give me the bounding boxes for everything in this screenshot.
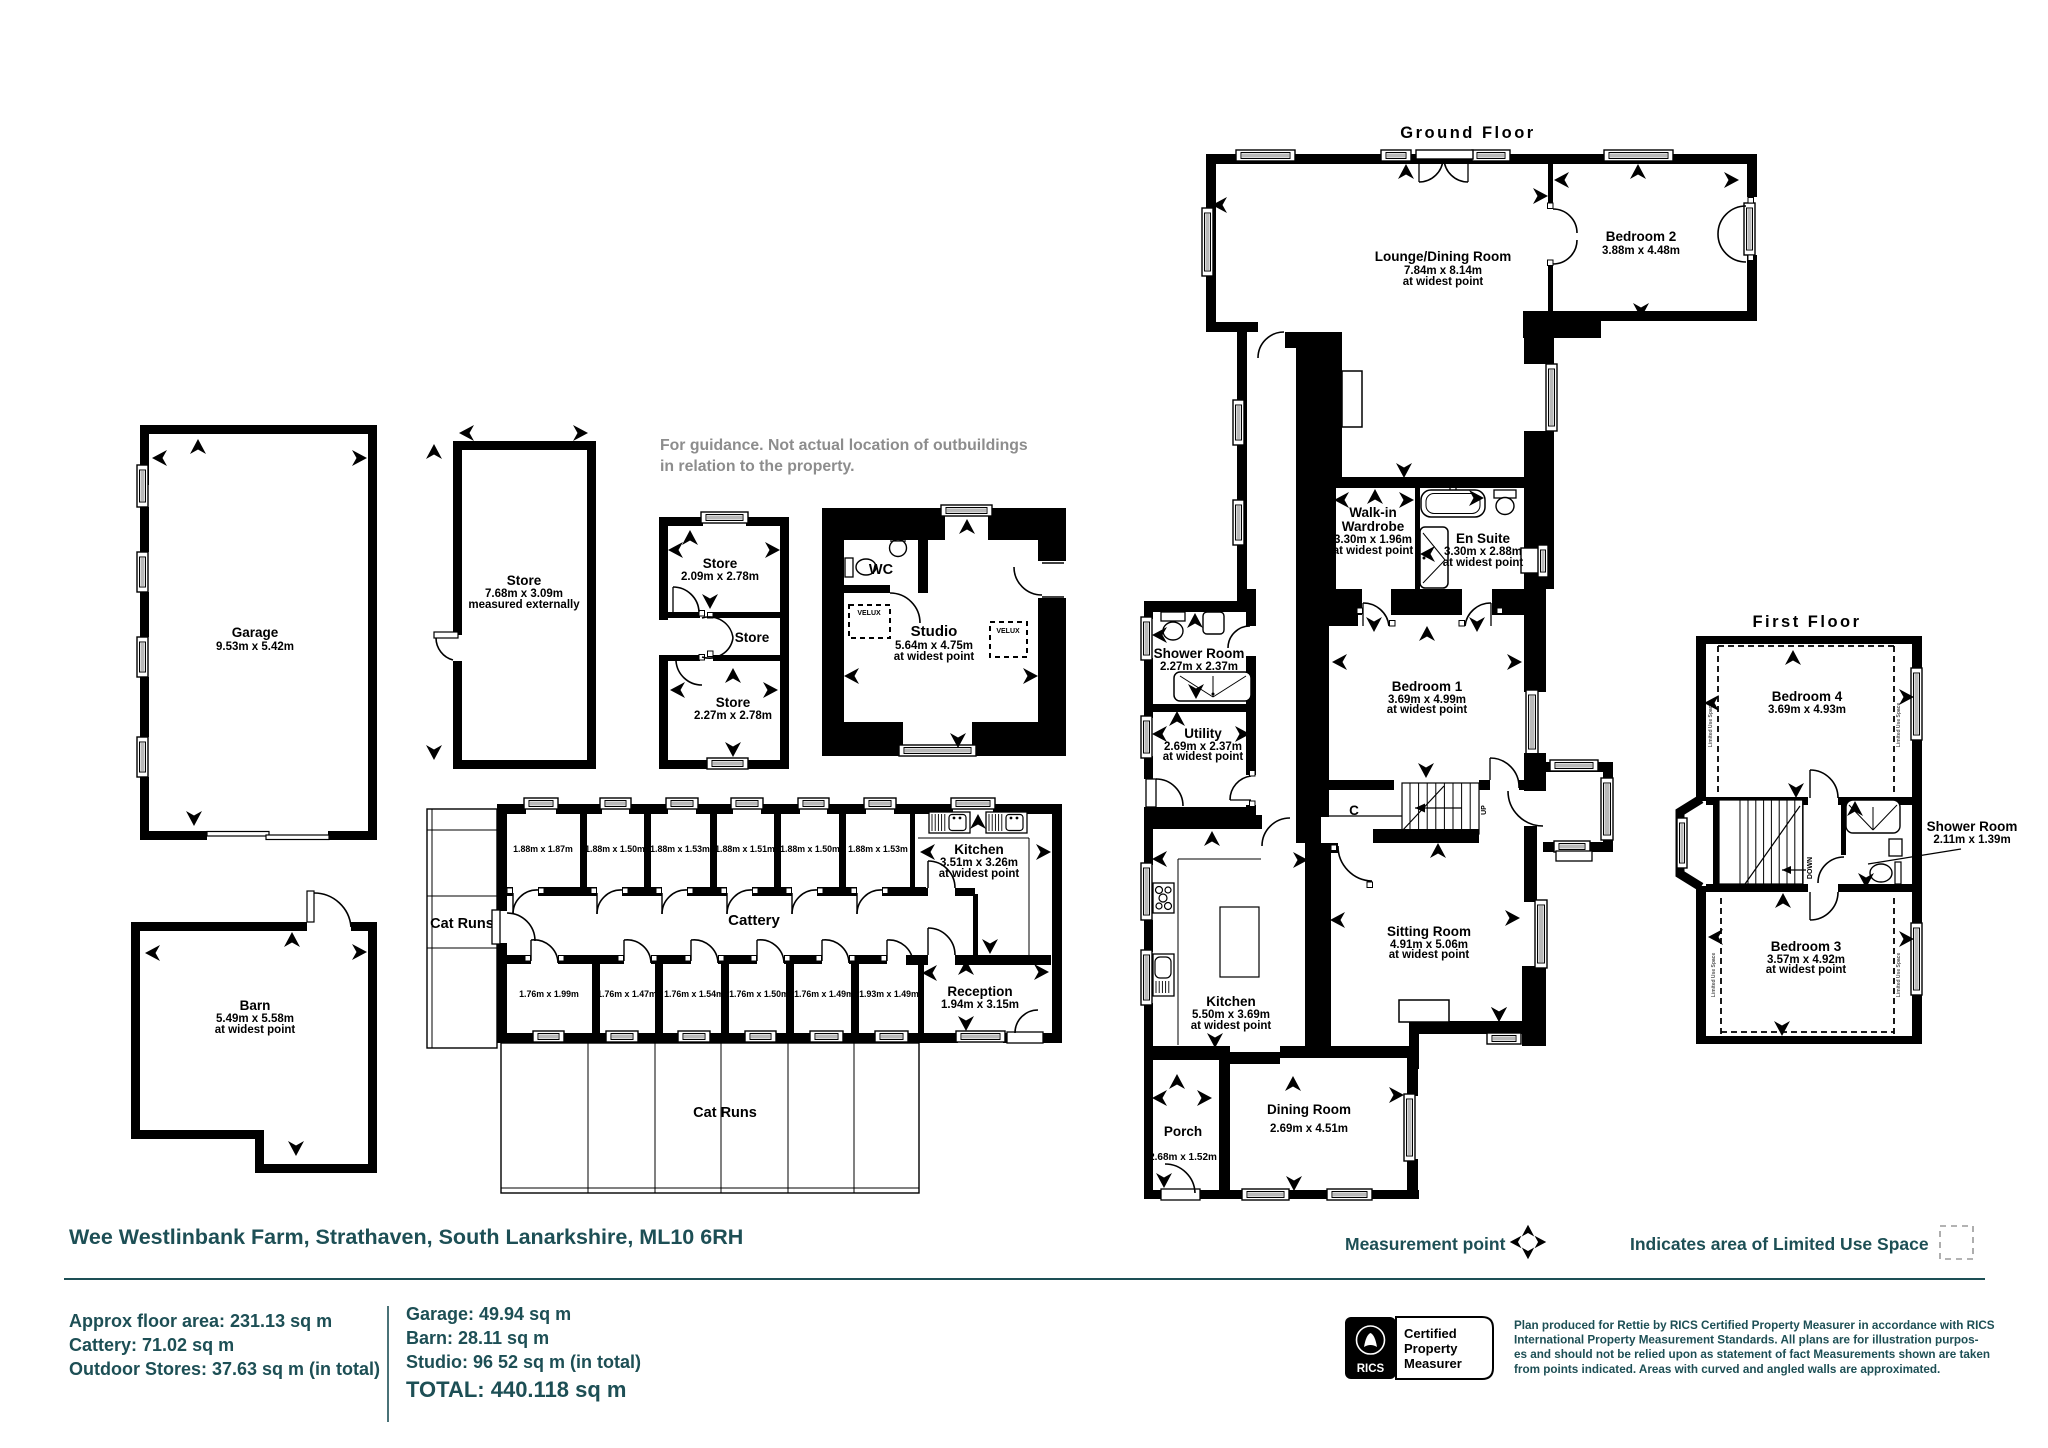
svg-text:from points indicated. Areas w: from points indicated. Areas with curved… — [1514, 1363, 1940, 1376]
svg-text:3.88m x 4.48m: 3.88m x 4.48m — [1602, 245, 1680, 257]
svg-text:International Property Measur: International Property Measurement Stand… — [1514, 1334, 1979, 1347]
svg-text:at widest point: at widest point — [1191, 1020, 1272, 1032]
svg-text:Garage: Garage — [232, 625, 279, 640]
svg-text:Cattery: Cattery — [728, 912, 780, 929]
svg-text:1.88m x 1.51m: 1.88m x 1.51m — [715, 844, 775, 854]
svg-text:1.94m x 3.15m: 1.94m x 3.15m — [941, 999, 1019, 1011]
svg-text:at widest point: at widest point — [1443, 557, 1524, 569]
svg-text:Cat Runs: Cat Runs — [693, 1105, 757, 1121]
svg-text:at widest point: at widest point — [1766, 964, 1847, 976]
svg-text:1.76m x 1.47m: 1.76m x 1.47m — [597, 989, 657, 999]
svg-text:Garage: 49.94 sq m: Garage: 49.94 sq m — [406, 1304, 571, 1324]
svg-text:Dining Room: Dining Room — [1267, 1102, 1351, 1117]
svg-text:UP: UP — [1481, 805, 1488, 815]
svg-text:Sitting Room: Sitting Room — [1387, 924, 1471, 939]
svg-text:at widest point: at widest point — [1387, 704, 1468, 716]
svg-text:Bedroom 1: Bedroom 1 — [1392, 679, 1463, 694]
svg-text:measured externally: measured externally — [468, 599, 580, 611]
svg-text:Kitchen: Kitchen — [1206, 994, 1256, 1009]
svg-text:1.88m x 1.50m: 1.88m x 1.50m — [585, 844, 645, 854]
svg-text:at widest point: at widest point — [894, 651, 975, 663]
svg-text:Outdoor Stores: 37.63 sq m (in: Outdoor Stores: 37.63 sq m (in total) — [69, 1359, 380, 1379]
svg-text:Bedroom 2: Bedroom 2 — [1606, 229, 1677, 244]
svg-text:Store: Store — [507, 573, 542, 588]
svg-text:Indicates area of Limited Use: Indicates area of Limited Use Space — [1630, 1234, 1929, 1254]
svg-text:Kitchen: Kitchen — [954, 842, 1004, 857]
svg-text:VELUX: VELUX — [996, 628, 1020, 635]
svg-text:9.53m x 5.42m: 9.53m x 5.42m — [216, 641, 294, 653]
svg-text:Porch: Porch — [1164, 1124, 1202, 1139]
svg-text:2.69m x 4.51m: 2.69m x 4.51m — [1270, 1123, 1348, 1135]
svg-text:in relation to the property.: in relation to the property. — [660, 458, 855, 475]
svg-text:2.27m x 2.78m: 2.27m x 2.78m — [694, 710, 772, 722]
svg-text:Cattery: 71.02 sq m: Cattery: 71.02 sq m — [69, 1335, 234, 1355]
svg-text:VELUX: VELUX — [857, 610, 881, 617]
svg-text:Utility: Utility — [1184, 726, 1222, 741]
svg-text:Certified: Certified — [1404, 1326, 1457, 1341]
svg-text:Shower Room: Shower Room — [1927, 819, 2018, 834]
svg-text:Store: Store — [735, 630, 770, 645]
svg-text:Cat Runs: Cat Runs — [430, 916, 494, 932]
svg-text:2.27m x 2.37m: 2.27m x 2.37m — [1160, 661, 1238, 673]
svg-text:at widest point: at widest point — [1389, 949, 1470, 961]
svg-text:Plan produced for Rettie by RI: Plan produced for Rettie by RICS Certifi… — [1514, 1319, 1995, 1332]
svg-text:1.76m x 1.54m: 1.76m x 1.54m — [664, 989, 724, 999]
svg-text:Barn: 28.11 sq m: Barn: 28.11 sq m — [406, 1328, 549, 1348]
svg-text:at widest point: at widest point — [1163, 751, 1244, 763]
svg-text:2.09m x 2.78m: 2.09m x 2.78m — [681, 571, 759, 583]
svg-text:1.76m x 1.49m: 1.76m x 1.49m — [794, 989, 854, 999]
svg-text:En Suite: En Suite — [1456, 531, 1510, 546]
svg-text:at widest point: at widest point — [939, 868, 1020, 880]
svg-text:es and should not be relied up: es and should not be relied upon as stat… — [1514, 1348, 1990, 1361]
svg-text:Store: Store — [703, 556, 738, 571]
svg-text:1.76m x 1.99m: 1.76m x 1.99m — [519, 989, 579, 999]
svg-text:Bedroom 3: Bedroom 3 — [1771, 939, 1842, 954]
svg-text:1.88m x 1.53m: 1.88m x 1.53m — [848, 844, 908, 854]
svg-text:For guidance. Not actual locat: For guidance. Not actual location of out… — [660, 437, 1028, 454]
svg-text:RICS: RICS — [1357, 1363, 1385, 1375]
svg-text:Limited Use Space: Limited Use Space — [1896, 953, 1902, 998]
svg-text:Ground Floor: Ground Floor — [1400, 124, 1535, 142]
svg-text:Lounge/Dining Room: Lounge/Dining Room — [1375, 249, 1511, 264]
svg-text:Limited Use Space: Limited Use Space — [1708, 703, 1714, 748]
svg-text:Wee Westlinbank Farm, Strathav: Wee Westlinbank Farm, Strathaven, South … — [69, 1225, 743, 1249]
svg-text:2.11m x 1.39m: 2.11m x 1.39m — [1933, 834, 2010, 846]
svg-text:Approx floor area: 231.13 sq m: Approx floor area: 231.13 sq m — [69, 1311, 332, 1331]
svg-text:First Floor: First Floor — [1752, 613, 1861, 631]
svg-text:Reception: Reception — [947, 984, 1012, 999]
svg-text:C: C — [1349, 803, 1359, 818]
svg-text:3.69m x 4.93m: 3.69m x 4.93m — [1768, 704, 1846, 716]
svg-text:Store: Store — [716, 695, 751, 710]
svg-text:1.88m x 1.53m: 1.88m x 1.53m — [650, 844, 710, 854]
svg-text:Studio: Studio — [911, 623, 958, 640]
svg-text:Measurer: Measurer — [1404, 1356, 1462, 1371]
svg-text:1.88m x 1.87m: 1.88m x 1.87m — [513, 844, 573, 854]
svg-text:DOWN: DOWN — [1807, 857, 1814, 879]
svg-text:Shower Room: Shower Room — [1154, 646, 1245, 661]
svg-text:Studio: 96 52 sq m (in total): Studio: 96 52 sq m (in total) — [406, 1352, 641, 1372]
svg-text:1.76m x 1.50m: 1.76m x 1.50m — [729, 989, 789, 999]
svg-text:Wardrobe: Wardrobe — [1342, 519, 1405, 534]
svg-text:1.93m x 1.49m: 1.93m x 1.49m — [859, 989, 919, 999]
svg-text:Walk-in: Walk-in — [1349, 505, 1397, 520]
svg-text:Limited Use Space: Limited Use Space — [1711, 953, 1717, 998]
svg-text:WC: WC — [869, 562, 894, 578]
svg-text:Bedroom 4: Bedroom 4 — [1772, 689, 1843, 704]
svg-text:Property: Property — [1404, 1341, 1458, 1356]
svg-text:2.68m x 1.52m: 2.68m x 1.52m — [1149, 1152, 1217, 1163]
svg-text:Barn: Barn — [240, 998, 271, 1013]
svg-text:TOTAL: 440.118 sq m: TOTAL: 440.118 sq m — [406, 1377, 627, 1402]
svg-text:at widest point: at widest point — [215, 1024, 296, 1036]
svg-text:1.88m x 1.50m: 1.88m x 1.50m — [780, 844, 840, 854]
svg-text:at widest point: at widest point — [1333, 545, 1414, 557]
svg-text:Limited Use Space: Limited Use Space — [1896, 703, 1902, 748]
svg-text:Measurement point: Measurement point — [1345, 1234, 1506, 1254]
svg-text:at widest point: at widest point — [1403, 276, 1484, 288]
